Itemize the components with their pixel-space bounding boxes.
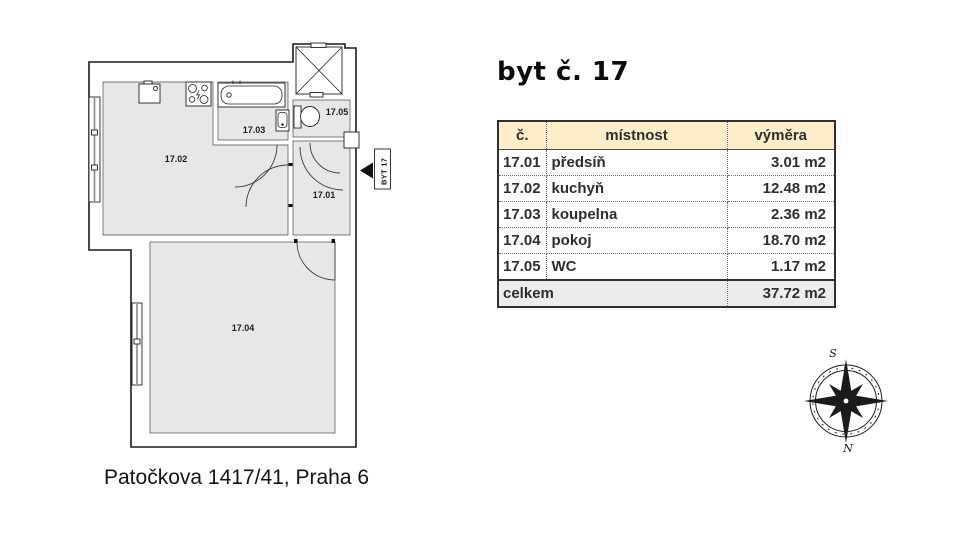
row-room: koupelna <box>546 202 727 228</box>
window-icon <box>89 97 100 202</box>
room-1704-area <box>150 242 335 433</box>
room-label-1701: 17.01 <box>313 190 336 200</box>
room-label-1705: 17.05 <box>326 107 349 117</box>
row-area: 18.70 m2 <box>727 228 835 254</box>
row-room: předsíň <box>546 150 727 176</box>
compass-north-label: N <box>842 442 853 455</box>
entrance-door-frame <box>344 132 359 148</box>
table-row: 17.02 kuchyň 12.48 m2 <box>498 176 835 202</box>
row-area: 1.17 m2 <box>727 254 835 281</box>
table-row: 17.01 předsíň 3.01 m2 <box>498 150 835 176</box>
window-icon <box>132 303 142 385</box>
room-label-1704: 17.04 <box>232 323 255 333</box>
total-area: 37.72 m2 <box>727 280 835 307</box>
row-area: 12.48 m2 <box>727 176 835 202</box>
stove-icon <box>186 82 211 106</box>
page: 17.02 17.03 17.05 17.01 17.04 BYT 17 S N… <box>0 0 960 540</box>
kitchen-sink-icon <box>139 81 160 103</box>
table-header-row: č. místnost výměra <box>498 121 835 150</box>
row-number: 17.03 <box>498 202 546 228</box>
room-area-table: č. místnost výměra 17.01 předsíň 3.01 m2… <box>497 120 836 308</box>
header-number: č. <box>498 121 546 150</box>
row-room: pokoj <box>546 228 727 254</box>
room-label-1703: 17.03 <box>243 125 266 135</box>
entrance-arrow-icon <box>360 163 373 179</box>
address-caption: Patočkova 1417/41, Praha 6 <box>104 466 369 490</box>
total-label: celkem <box>498 280 727 307</box>
bathtub-icon <box>218 81 285 108</box>
table-total-row: celkem 37.72 m2 <box>498 280 835 307</box>
washbasin-icon <box>276 110 289 131</box>
unit-tag-label: BYT 17 <box>380 158 389 185</box>
header-area: výměra <box>727 121 835 150</box>
compass-rose-icon: S N <box>804 347 888 455</box>
row-area: 3.01 m2 <box>727 150 835 176</box>
row-room: WC <box>546 254 727 281</box>
table-row: 17.04 pokoj 18.70 m2 <box>498 228 835 254</box>
row-number: 17.01 <box>498 150 546 176</box>
row-room: kuchyň <box>546 176 727 202</box>
room-1701-area <box>293 141 350 235</box>
page-title: byt č. 17 <box>497 57 629 87</box>
unit-tag: BYT 17 <box>360 149 391 189</box>
elevator-shaft-icon <box>296 43 342 97</box>
row-number: 17.04 <box>498 228 546 254</box>
toilet-icon <box>294 106 320 128</box>
row-area: 2.36 m2 <box>727 202 835 228</box>
compass-south-label: S <box>829 347 837 360</box>
row-number: 17.05 <box>498 254 546 281</box>
header-room: místnost <box>546 121 727 150</box>
room-label-1702: 17.02 <box>165 154 188 164</box>
table-row: 17.03 koupelna 2.36 m2 <box>498 202 835 228</box>
row-number: 17.02 <box>498 176 546 202</box>
table-row: 17.05 WC 1.17 m2 <box>498 254 835 281</box>
